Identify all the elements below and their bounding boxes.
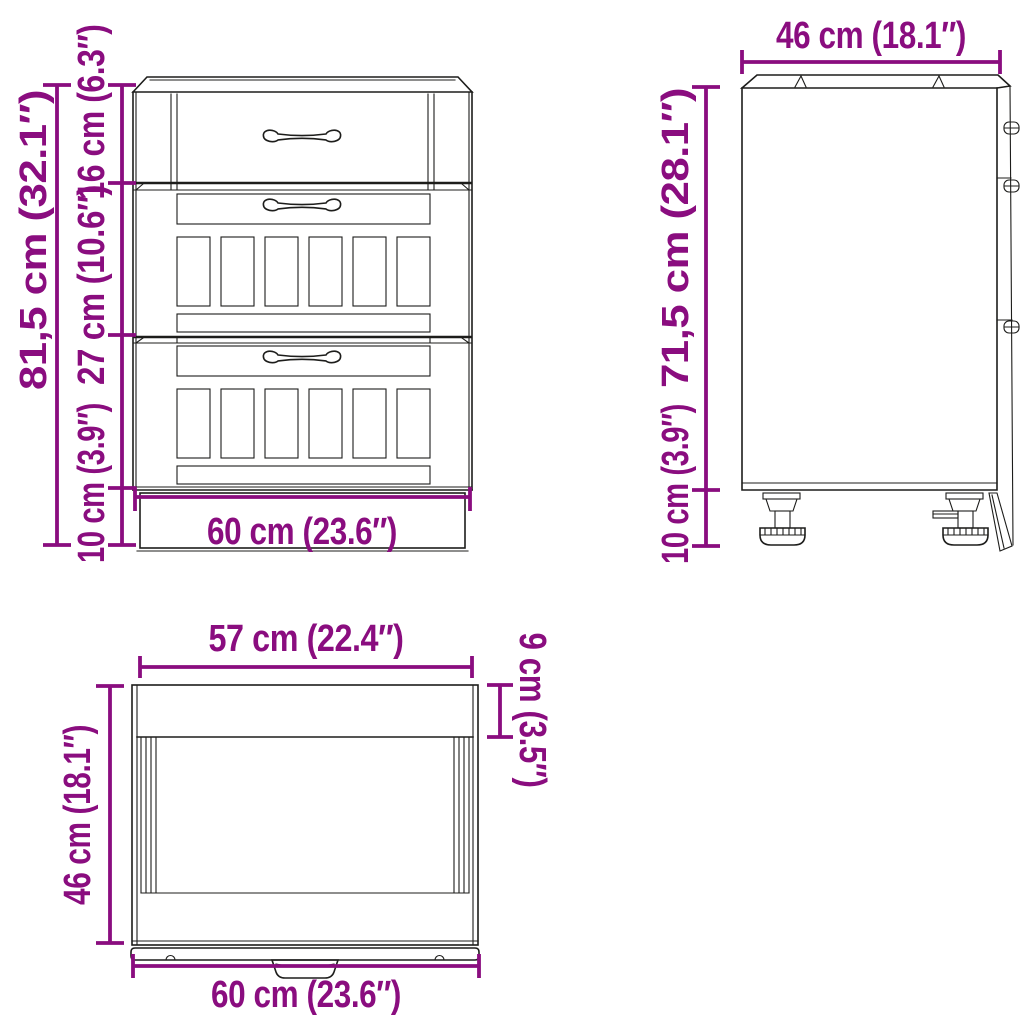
side-back-plate xyxy=(989,493,1012,551)
top-outer-width-label: 60 cm (23.6″) xyxy=(211,974,401,1016)
front-total-height-dimension: 81,5 cm (32.1″) xyxy=(13,85,71,545)
top-depth-label: 46 cm (18.1″) xyxy=(57,725,99,905)
side-depth-label: 46 cm (18.1″) xyxy=(776,15,966,57)
top-outer-width-dimension: 60 cm (23.6″) xyxy=(133,954,479,1016)
bottom-drawer-handle-icon xyxy=(263,351,340,362)
top-cabinet-outline xyxy=(132,685,478,945)
front-middle-drawer xyxy=(134,194,471,343)
front-total-height-label: 81,5 cm (32.1″) xyxy=(13,90,55,390)
side-left-foot xyxy=(760,493,805,545)
technical-drawing-canvas: 81,5 cm (32.1″) 16 cm (6.3″) 27 cm (10.6… xyxy=(0,0,1024,1024)
top-inner-width-label: 57 cm (22.4″) xyxy=(209,618,404,660)
front-segment-dimension: 16 cm (6.3″) 27 cm (10.6″) 10 cm (3.9″) xyxy=(71,25,136,564)
side-depth-dimension: 46 cm (18.1″) xyxy=(742,15,1000,74)
top-back-band-dimension: 9 cm (3.5″) xyxy=(487,633,553,788)
side-view: 46 cm (18.1″) 71,5 cm (28.1″) 10 cm (3.9… xyxy=(655,15,1019,564)
side-legs-height-label: 10 cm (3.9″) xyxy=(655,404,697,564)
front-top-drawer xyxy=(134,94,471,190)
side-height-dimension: 71,5 cm (28.1″) 10 cm (3.9″) xyxy=(655,87,720,564)
top-back-band-label: 9 cm (3.5″) xyxy=(511,633,553,788)
front-top-drawer-height-label: 16 cm (6.3″) xyxy=(71,25,113,200)
side-cabinet-outline xyxy=(742,75,1013,545)
top-view: 57 cm (22.4″) 46 cm (18.1″) 9 cm (3.5″) … xyxy=(57,618,553,1016)
side-right-foot xyxy=(933,493,988,545)
top-depth-dimension: 46 cm (18.1″) xyxy=(57,686,124,943)
side-body-height-label: 71,5 cm (28.1″) xyxy=(655,88,697,388)
front-view: 81,5 cm (32.1″) 16 cm (6.3″) 27 cm (10.6… xyxy=(13,25,472,564)
side-worktop-face xyxy=(742,75,1010,88)
front-plinth-height-label: 10 cm (3.9″) xyxy=(71,403,113,563)
front-bottom-drawer xyxy=(177,346,430,484)
top-drawer-handle-icon xyxy=(263,130,340,141)
front-worktop-rim xyxy=(133,77,472,92)
middle-drawer-handle-icon xyxy=(263,199,340,210)
top-inner-width-dimension: 57 cm (22.4″) xyxy=(140,618,472,678)
front-middle-drawer-height-label: 27 cm (10.6″) xyxy=(71,185,113,385)
cabinet-dimension-diagram: 81,5 cm (32.1″) 16 cm (6.3″) 27 cm (10.6… xyxy=(0,0,1024,1024)
front-width-label: 60 cm (23.6″) xyxy=(207,511,397,553)
front-width-dimension: 60 cm (23.6″) xyxy=(135,487,470,553)
